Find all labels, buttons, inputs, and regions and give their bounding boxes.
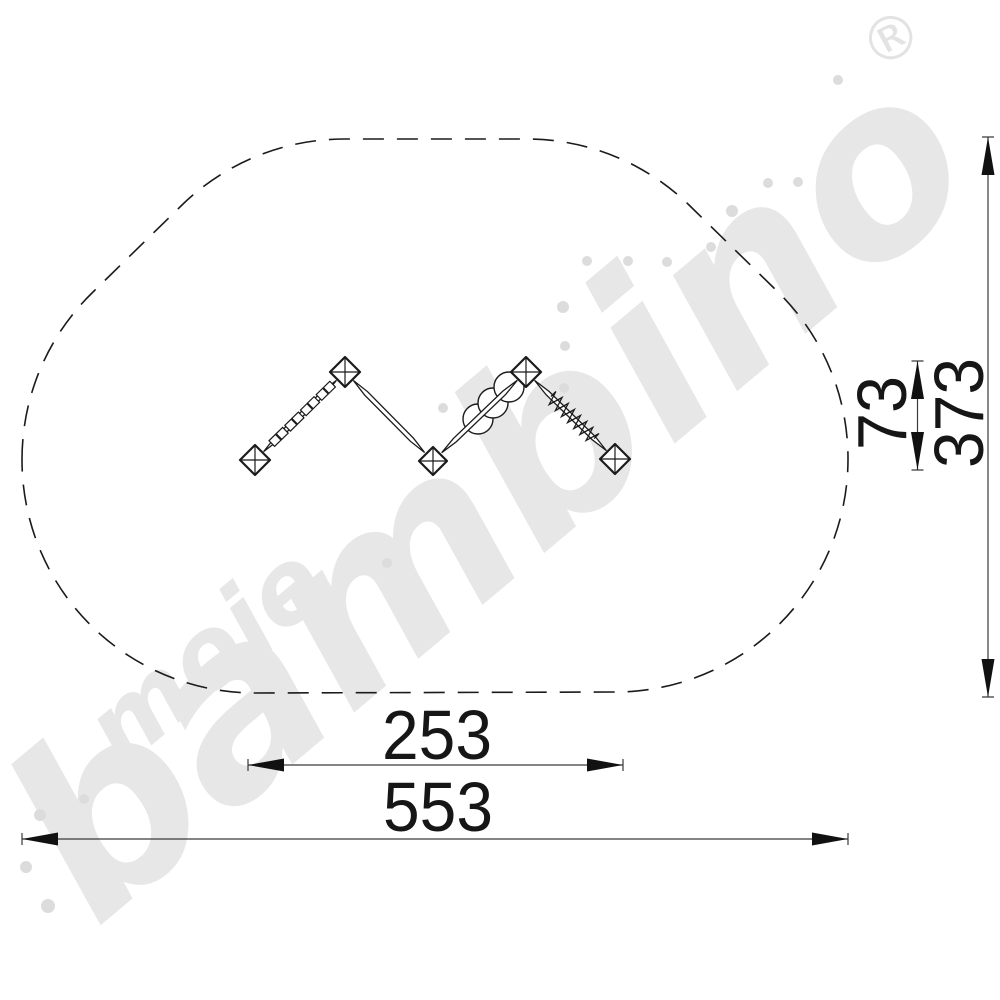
technical-drawing-svg: bambino moje ® xyxy=(0,0,1000,1000)
watermark-dot xyxy=(438,403,448,413)
watermark-dot xyxy=(582,256,592,266)
dimension-label-inner-width: 253 xyxy=(382,696,492,774)
watermark-dot xyxy=(41,899,55,913)
watermark-dot xyxy=(382,558,392,568)
dimension-label-total-width: 553 xyxy=(383,768,493,846)
watermark-dot xyxy=(833,75,843,85)
dimension-inner-depth: 73 xyxy=(843,361,924,470)
watermark-dot xyxy=(662,257,672,267)
watermark-word-large: bambino xyxy=(0,13,1000,973)
watermark: bambino moje ® xyxy=(0,0,1000,974)
watermark-dot xyxy=(726,205,738,217)
arrow-down-icon xyxy=(982,659,995,697)
watermark-dot xyxy=(20,861,32,873)
watermark-dot xyxy=(559,383,569,393)
watermark-dot xyxy=(706,242,716,252)
dimension-label-inner-depth: 73 xyxy=(843,376,921,450)
watermark-dot xyxy=(763,178,773,188)
watermark-dot xyxy=(79,794,89,804)
drawing-canvas: bambino moje ® xyxy=(0,0,1000,1000)
watermark-dot xyxy=(793,177,803,187)
watermark-dot xyxy=(623,256,633,266)
watermark-dot xyxy=(34,809,46,821)
watermark-dot xyxy=(557,301,569,313)
arrow-up-icon xyxy=(982,137,995,175)
arrow-right-icon xyxy=(587,759,623,772)
arrow-right-icon xyxy=(812,833,848,846)
dimension-label-total-depth: 373 xyxy=(920,358,998,468)
watermark-dot xyxy=(560,341,570,351)
